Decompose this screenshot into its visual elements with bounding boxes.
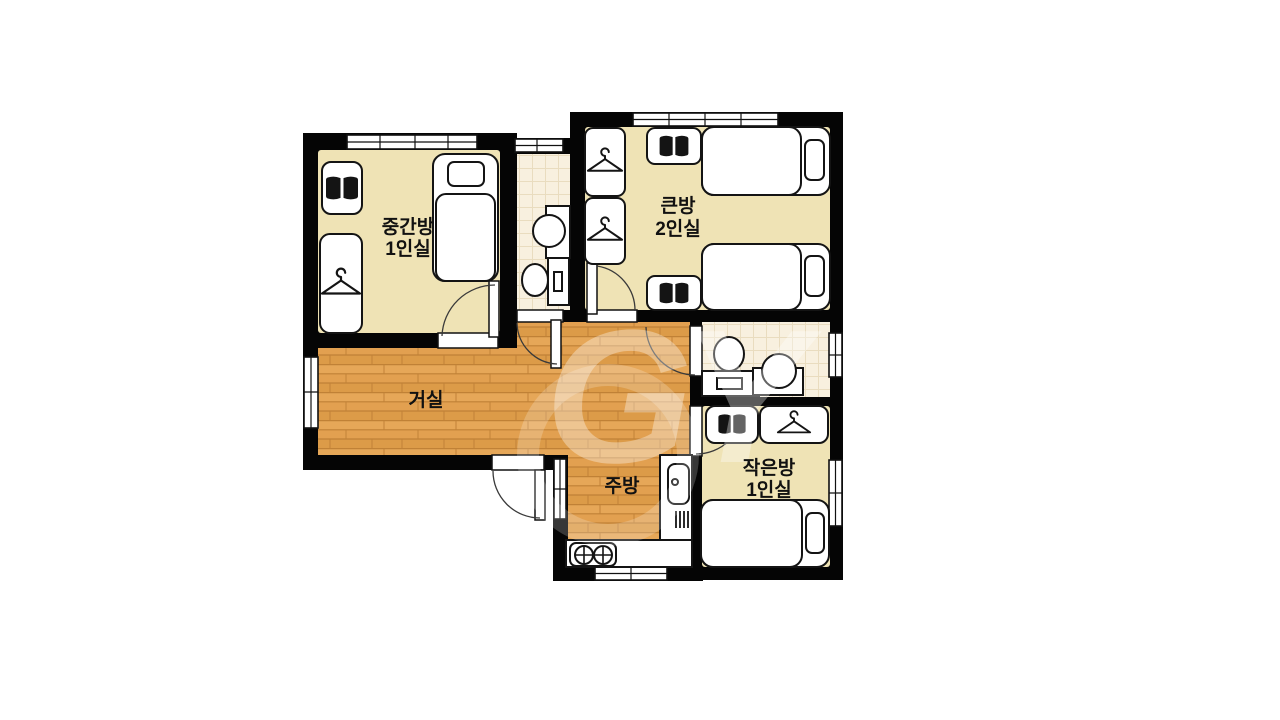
burner bbox=[575, 546, 593, 564]
small-room-window bbox=[829, 460, 842, 526]
living-room-window bbox=[304, 357, 318, 428]
mattress bbox=[701, 500, 802, 567]
pillow bbox=[805, 256, 824, 296]
small-room-capacity: 1인실 bbox=[746, 479, 792, 501]
big-room-window bbox=[633, 113, 778, 126]
burner bbox=[594, 546, 612, 564]
floor-plan-canvas: GY 중간방 1인실 큰방 2인실 거실 주방 작은방 1인실 bbox=[0, 0, 1280, 720]
bed bbox=[701, 500, 829, 567]
bathroom1-window bbox=[515, 139, 563, 152]
bed bbox=[433, 154, 498, 281]
wardrobe bbox=[585, 128, 625, 196]
middle-room-window bbox=[347, 135, 477, 149]
wardrobe bbox=[320, 234, 362, 333]
middle-room-capacity: 1인실 bbox=[385, 238, 431, 260]
mattress bbox=[436, 194, 495, 281]
mattress bbox=[702, 127, 801, 195]
big-room-capacity: 2인실 bbox=[655, 218, 701, 240]
pillow bbox=[806, 513, 824, 553]
wardrobe bbox=[585, 198, 625, 264]
floor-plan-page: GY 중간방 1인실 큰방 2인실 거실 주방 작은방 1인실 bbox=[0, 0, 1280, 720]
living-room-label: 거실 bbox=[409, 389, 444, 411]
bed bbox=[702, 127, 830, 195]
big-room-label: 큰방 bbox=[661, 195, 696, 217]
kitchen-label: 주방 bbox=[605, 475, 640, 497]
middle-room-label: 중간방 bbox=[382, 216, 435, 238]
bathroom2-window bbox=[829, 333, 842, 377]
sink bbox=[533, 215, 565, 247]
pillow bbox=[448, 162, 484, 186]
kitchen-window bbox=[595, 567, 667, 580]
desk bbox=[647, 128, 701, 164]
pillow bbox=[805, 140, 824, 180]
small-room-label: 작은방 bbox=[743, 457, 796, 479]
